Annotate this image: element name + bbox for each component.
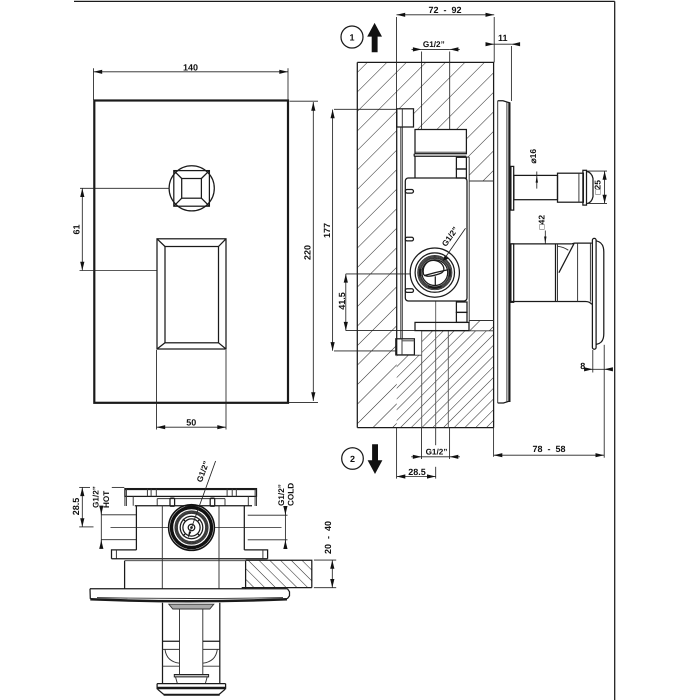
svg-text:11: 11 bbox=[498, 33, 508, 43]
svg-text:20 - 40: 20 - 40 bbox=[323, 521, 333, 554]
svg-text:177: 177 bbox=[322, 223, 332, 238]
svg-text:⌀16: ⌀16 bbox=[528, 149, 538, 164]
svg-text:G1/2”: G1/2” bbox=[426, 448, 448, 457]
svg-text:61: 61 bbox=[72, 224, 82, 234]
svg-text:41.5: 41.5 bbox=[337, 292, 347, 310]
svg-text:G1/2”: G1/2” bbox=[91, 486, 100, 508]
svg-text:□42: □42 bbox=[536, 215, 546, 230]
svg-text:220: 220 bbox=[303, 245, 313, 260]
svg-text:HOT: HOT bbox=[102, 491, 111, 508]
svg-text:G1/2”: G1/2” bbox=[423, 40, 445, 49]
svg-text:28.5: 28.5 bbox=[71, 498, 81, 516]
svg-text:2: 2 bbox=[350, 454, 355, 464]
svg-text:1: 1 bbox=[349, 32, 354, 42]
svg-text:COLD: COLD bbox=[286, 483, 295, 506]
svg-text:28.5: 28.5 bbox=[408, 467, 426, 477]
svg-text:G1/2”: G1/2” bbox=[277, 484, 286, 506]
svg-text:8: 8 bbox=[580, 361, 585, 371]
svg-text:78 - 58: 78 - 58 bbox=[532, 444, 565, 454]
svg-text:140: 140 bbox=[183, 62, 198, 72]
svg-text:72 - 92: 72 - 92 bbox=[428, 5, 461, 15]
svg-text:□25: □25 bbox=[593, 180, 603, 195]
svg-text:50: 50 bbox=[186, 418, 196, 428]
